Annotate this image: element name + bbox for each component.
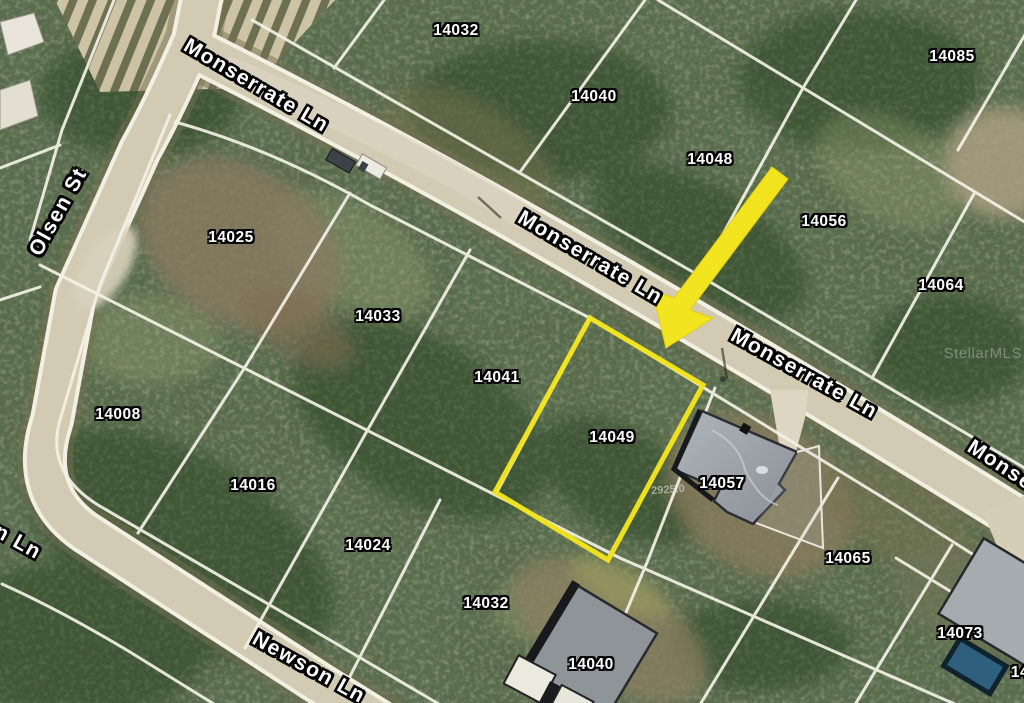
parcel-label-14073: 14073 [937, 625, 983, 643]
parcel-label-14016: 14016 [230, 477, 276, 495]
parcel-label-14024: 14024 [345, 537, 391, 555]
parcel-label-14040-s: 14040 [568, 656, 614, 674]
parcel-label-14056: 14056 [801, 213, 847, 231]
parcel-label-14032-n: 14032 [433, 22, 479, 40]
parcel-label-14040-n: 14040 [571, 88, 617, 106]
map-imagery [0, 0, 1024, 703]
parcel-label-14033: 14033 [355, 308, 401, 326]
parcel-label-14008: 14008 [95, 406, 141, 424]
aerial-map: Monserrate Ln Olsen St Monserrate Ln Mon… [0, 0, 1024, 703]
parcel-label-14049-highlighted: 14049 [589, 429, 635, 447]
parcel-label-14041: 14041 [474, 369, 520, 387]
watermark-stellar-mls: StellarMLS [944, 345, 1022, 362]
parcel-label-14057: 14057 [699, 475, 745, 493]
parcel-label-14064: 14064 [918, 277, 964, 295]
parcel-label-14048: 14048 [687, 151, 733, 169]
parcel-label-14065: 14065 [825, 550, 871, 568]
lot-dimension-label: 2925.0 [651, 483, 685, 497]
parcel-label-14032-s: 14032 [463, 595, 509, 613]
parcel-label-14025: 14025 [208, 229, 254, 247]
parcel-label-partial: 14 [1011, 664, 1024, 682]
parcel-label-14085: 14085 [929, 48, 975, 66]
